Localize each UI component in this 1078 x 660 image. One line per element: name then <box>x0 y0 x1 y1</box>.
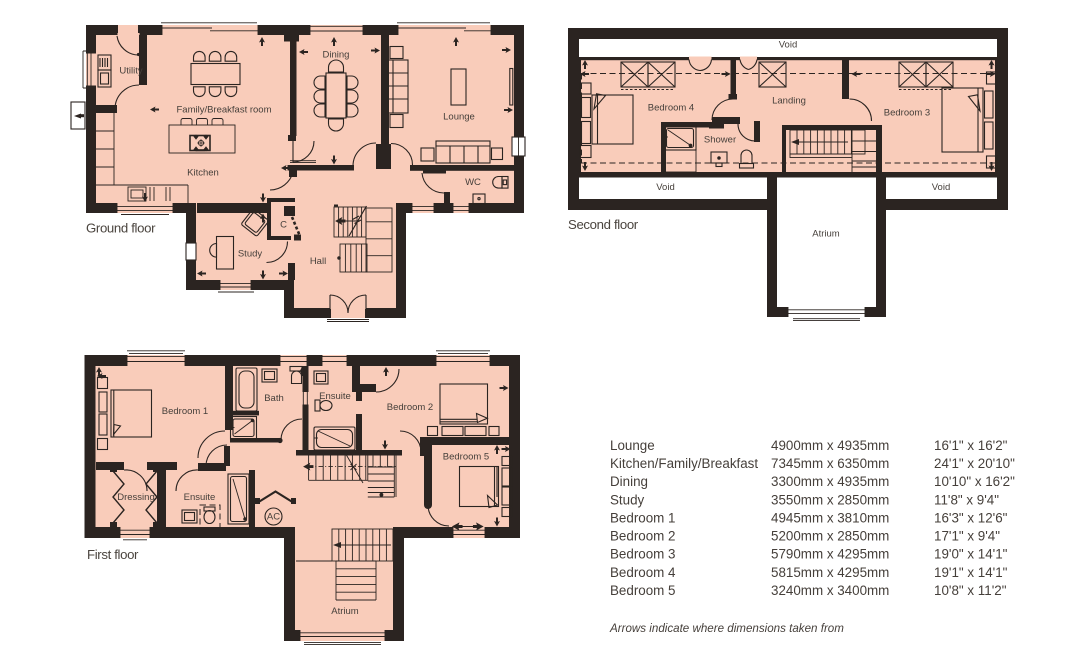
svg-text:5815mm x 4295mm: 5815mm x 4295mm <box>771 565 889 580</box>
svg-text:Void: Void <box>779 40 798 51</box>
svg-text:Bedroom 3: Bedroom 3 <box>884 108 930 119</box>
svg-text:Void: Void <box>932 182 951 193</box>
svg-text:5790mm x 4295mm: 5790mm x 4295mm <box>771 547 889 562</box>
svg-text:Study: Study <box>238 249 263 260</box>
svg-text:19'1" x 14'1": 19'1" x 14'1" <box>934 565 1008 580</box>
svg-text:C: C <box>280 220 287 231</box>
svg-text:Bedroom 1: Bedroom 1 <box>162 406 208 417</box>
svg-text:3300mm x 4935mm: 3300mm x 4935mm <box>771 474 889 489</box>
svg-text:Atrium: Atrium <box>812 229 840 240</box>
svg-text:Atrium: Atrium <box>331 606 359 617</box>
svg-text:Second floor: Second floor <box>568 217 639 232</box>
svg-text:Dressing: Dressing <box>117 492 155 503</box>
svg-text:3240mm x 3400mm: 3240mm x 3400mm <box>771 583 889 598</box>
svg-text:16'1" x 16'2": 16'1" x 16'2" <box>934 438 1008 453</box>
svg-text:Bedroom 5: Bedroom 5 <box>443 452 489 463</box>
svg-text:Ensuite: Ensuite <box>319 391 351 402</box>
svg-text:Dining: Dining <box>323 50 350 61</box>
svg-text:Shower: Shower <box>704 135 736 146</box>
svg-text:AC: AC <box>267 512 280 523</box>
svg-text:Ground floor: Ground floor <box>86 221 156 236</box>
svg-text:Ensuite: Ensuite <box>184 492 216 503</box>
svg-text:Kitchen: Kitchen <box>187 168 219 179</box>
svg-text:Void: Void <box>656 182 675 193</box>
svg-text:Arrows indicate where dimensio: Arrows indicate where dimensions taken f… <box>609 622 844 635</box>
svg-text:4945mm x 3810mm: 4945mm x 3810mm <box>771 510 889 525</box>
svg-text:7345mm x 6350mm: 7345mm x 6350mm <box>771 456 889 471</box>
svg-text:4900mm x 4935mm: 4900mm x 4935mm <box>771 438 889 453</box>
svg-text:17'1" x 9'4": 17'1" x 9'4" <box>934 529 1000 544</box>
svg-text:16'3" x 12'6": 16'3" x 12'6" <box>934 510 1008 525</box>
svg-text:Utility: Utility <box>119 66 142 77</box>
svg-text:Study: Study <box>610 492 645 507</box>
svg-text:WC: WC <box>465 177 481 188</box>
svg-text:19'0" x 14'1": 19'0" x 14'1" <box>934 547 1008 562</box>
svg-text:Bedroom 5: Bedroom 5 <box>610 583 676 598</box>
svg-text:Lounge: Lounge <box>443 112 475 123</box>
svg-text:Bath: Bath <box>264 393 284 404</box>
svg-text:10'8" x 11'2": 10'8" x 11'2" <box>934 583 1007 598</box>
svg-text:Bedroom 2: Bedroom 2 <box>610 529 676 544</box>
svg-text:11'8" x 9'4": 11'8" x 9'4" <box>934 492 999 507</box>
svg-text:5200mm x 2850mm: 5200mm x 2850mm <box>771 529 889 544</box>
svg-text:Hall: Hall <box>310 256 326 267</box>
svg-text:Bedroom 4: Bedroom 4 <box>610 565 676 580</box>
svg-text:Lounge: Lounge <box>610 438 655 453</box>
svg-text:Kitchen/Family/Breakfast: Kitchen/Family/Breakfast <box>610 456 758 471</box>
svg-text:Bedroom 4: Bedroom 4 <box>648 103 694 114</box>
svg-text:24'1" x 20'10": 24'1" x 20'10" <box>934 456 1015 471</box>
svg-text:Bedroom 1: Bedroom 1 <box>610 510 676 525</box>
svg-text:First floor: First floor <box>87 547 139 562</box>
svg-text:Family/Breakfast room: Family/Breakfast room <box>176 105 271 116</box>
svg-text:Bedroom 2: Bedroom 2 <box>387 402 433 413</box>
svg-text:3550mm x 2850mm: 3550mm x 2850mm <box>771 492 889 507</box>
svg-text:Landing: Landing <box>772 96 806 107</box>
svg-text:10'10" x 16'2": 10'10" x 16'2" <box>934 474 1015 489</box>
svg-text:Dining: Dining <box>610 474 648 489</box>
svg-text:Bedroom 3: Bedroom 3 <box>610 547 676 562</box>
